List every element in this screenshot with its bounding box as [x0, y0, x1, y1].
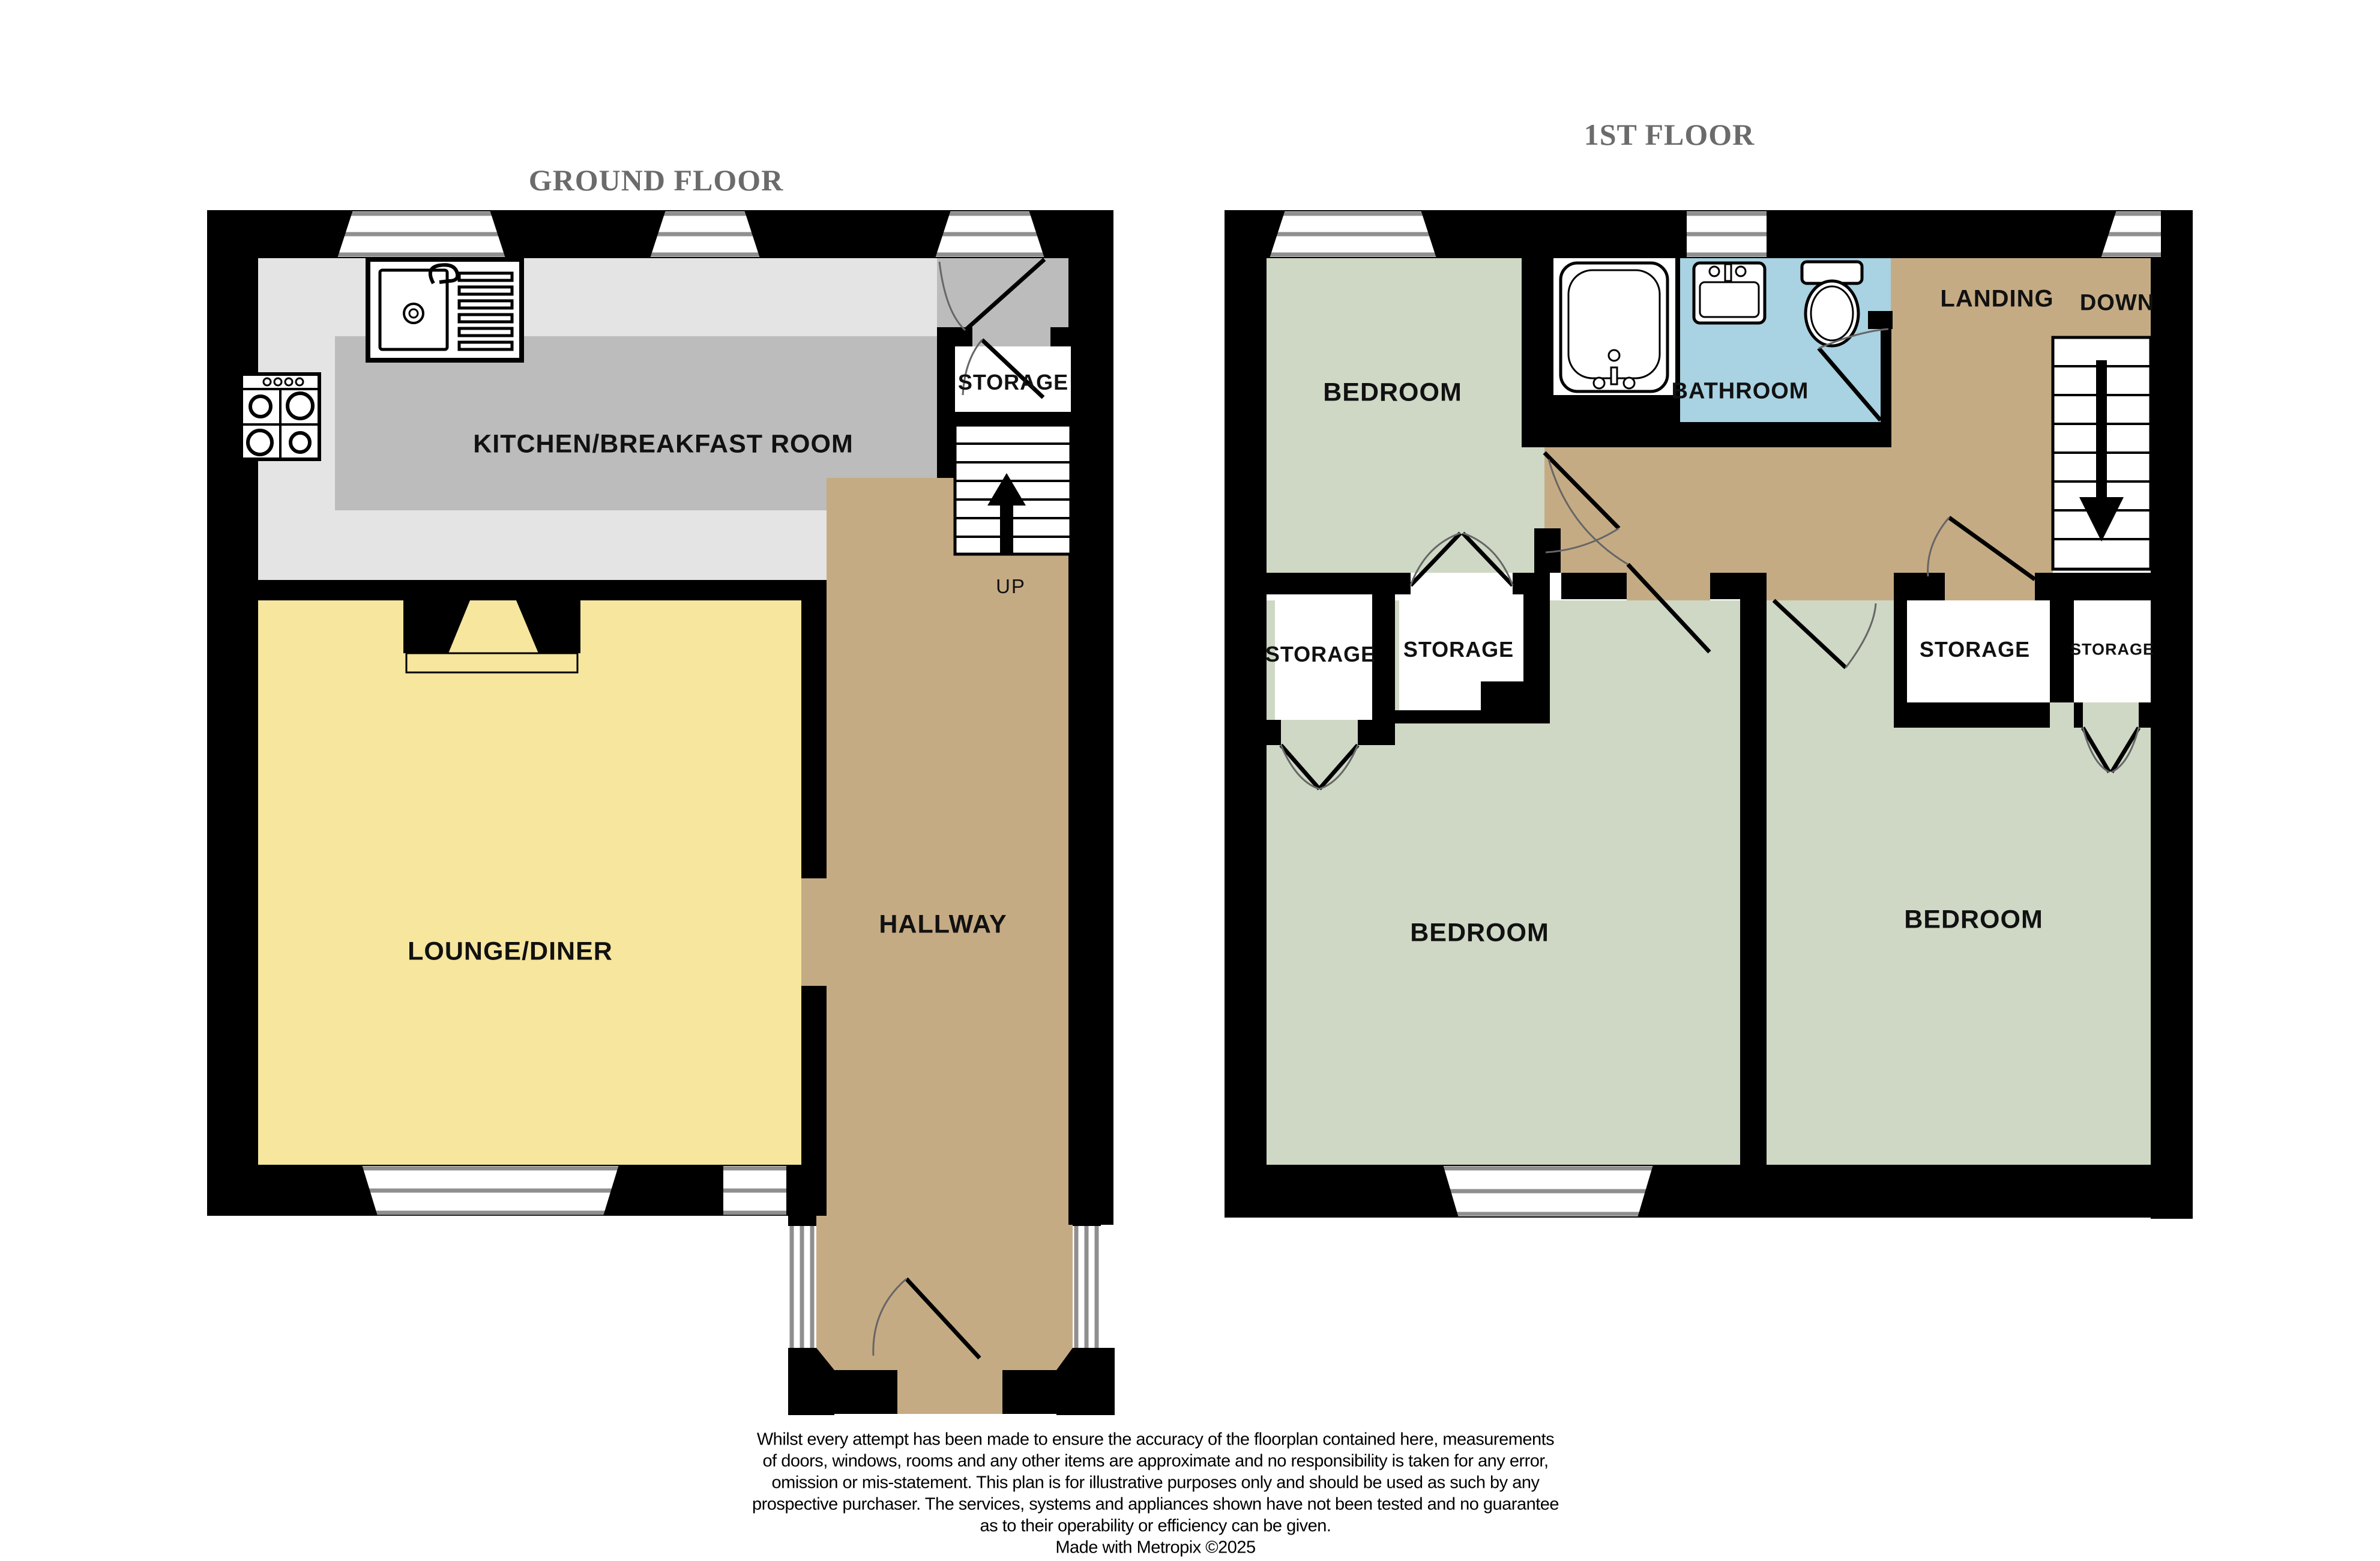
landing-corridor-floor: [1544, 447, 1891, 573]
wall-closet-a-stub-l: [1267, 720, 1281, 745]
down-label: DOWN: [2080, 291, 2154, 316]
bedroom-right-label: BEDROOM: [1904, 905, 2043, 935]
wall-corridor-bottom-a: [1561, 573, 1627, 599]
stairs-down: [2053, 337, 2151, 569]
wall-hallway-left-lower: [801, 986, 827, 1165]
disclaimer-line: of doors, windows, rooms and any other i…: [762, 1452, 1548, 1472]
bathtub-icon: [1561, 263, 1668, 391]
wall-closet-b-top-r: [1513, 573, 1550, 594]
wall-closet-d-stub-r: [2139, 702, 2151, 728]
disclaimer-line: prospective purchaser. The services, sys…: [752, 1495, 1559, 1515]
lounge-doorway-floor: [801, 878, 827, 986]
wall-bathroom-right-nub: [1868, 311, 1893, 329]
wall-bottom: [1225, 1165, 2193, 1218]
ground-floor-title: GROUND FLOOR: [529, 163, 784, 198]
bath-niche: [1522, 258, 1680, 422]
wall-kitchen-lounge: [240, 580, 801, 600]
wall-closet-b-right: [1523, 594, 1550, 723]
wall-between-bedrooms: [1740, 573, 1767, 1165]
wall-closet-c-bottom: [1894, 702, 2050, 728]
stove-icon: [241, 374, 319, 459]
wall-bathroom-bottom: [1522, 422, 1891, 447]
window: [337, 211, 505, 257]
floorplan-drawing: [0, 0, 2380, 1561]
window: [362, 1166, 619, 1215]
landing-tongue-floor: [1767, 573, 1894, 600]
bedroom-left-label: BEDROOM: [1410, 919, 1549, 948]
toilet-icon: [1802, 262, 1862, 346]
fireplace: [403, 600, 580, 672]
bathroom-label: BATHROOM: [1672, 379, 1809, 405]
wall-closet-b-notch: [1481, 681, 1523, 710]
disclaimer-line: Whilst every attempt has been made to en…: [757, 1430, 1554, 1450]
wall-closet-b-top-l: [1395, 573, 1411, 594]
doorway-fill-c: [1411, 573, 1513, 594]
bathroom-sink-icon: [1694, 263, 1765, 323]
lounge-floor: [240, 600, 801, 1165]
sink-unit-icon: [368, 259, 522, 360]
window: [935, 211, 1044, 257]
bedroom-top-label: BEDROOM: [1323, 378, 1462, 408]
disclaimer-line: as to their operability or efficiency ca…: [980, 1517, 1331, 1536]
bedroom-top-floor: [1267, 258, 1544, 573]
storage-c-label: STORAGE: [1920, 637, 2030, 662]
window: [723, 1166, 786, 1215]
first-floor-plan: [1225, 210, 2193, 1219]
wall-landing-bottom-a: [1894, 573, 1945, 600]
wall-storage-bottom: [937, 412, 1071, 425]
wall-storage-top-r: [1050, 327, 1071, 346]
storage-d-label: STORAGE: [2070, 641, 2154, 659]
landing-label: LANDING: [1940, 286, 2053, 313]
landing-floor-left: [1891, 337, 2053, 573]
window: [1687, 211, 1767, 257]
window: [650, 211, 760, 257]
up-label: UP: [996, 575, 1026, 598]
storage-ground-label: STORAGE: [958, 370, 1068, 395]
floorplan-page: GROUND FLOOR 1ST FLOOR KITCHEN/BREAKFAST…: [0, 0, 2380, 1561]
storage-a-label: STORAGE: [1265, 642, 1376, 667]
first-floor-title: 1ST FLOOR: [1584, 117, 1755, 152]
storage-b-label: STORAGE: [1403, 637, 1514, 662]
front-doorway-floor: [897, 1370, 1002, 1414]
wall-hallway-left-upper: [801, 580, 827, 878]
metropix-credit: Made with Metropix ©2025: [1055, 1538, 1255, 1558]
kitchen-label: KITCHEN/BREAKFAST ROOM: [473, 430, 854, 459]
wall-landing-bottom-b: [2035, 573, 2151, 600]
stairs-up: [955, 425, 1071, 554]
wall-bathroom-right: [1881, 327, 1891, 447]
wall-right: [2151, 258, 2193, 1219]
wall-closet-d-stub-l: [2074, 702, 2083, 728]
wall-corridor-partition: [937, 327, 955, 478]
disclaimer-line: omission or mis-statement. This plan is …: [772, 1473, 1540, 1493]
hallway-label: HALLWAY: [879, 910, 1007, 940]
hallway-floor: [827, 554, 1071, 1165]
doorway-fill-b: [1945, 573, 2035, 600]
lounge-label: LOUNGE/DINER: [408, 937, 613, 967]
wall-closet-a-stub-r: [1358, 720, 1395, 745]
porch-floor: [816, 1165, 1073, 1370]
window: [1443, 1166, 1653, 1216]
wall-closet-c-left: [1894, 600, 1907, 702]
wall-left: [1225, 258, 1267, 1216]
window: [1270, 211, 1436, 257]
wall-closet-b-bottom: [1392, 710, 1523, 723]
wall-right: [1068, 258, 1113, 1225]
